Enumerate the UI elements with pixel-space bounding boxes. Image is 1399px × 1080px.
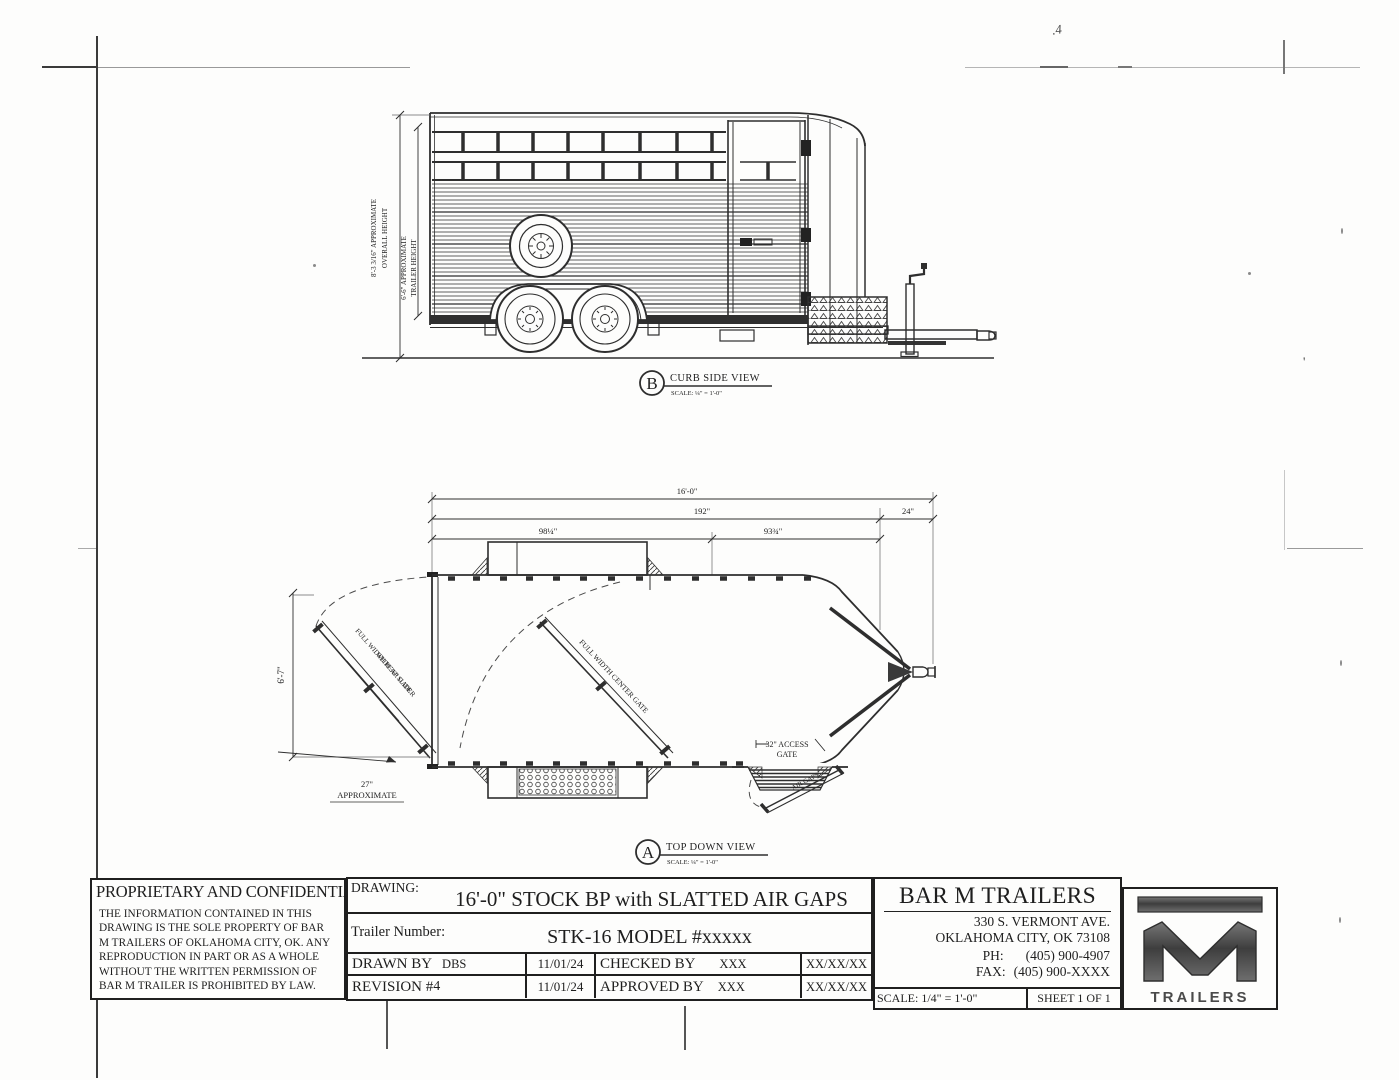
dim-front-section: 93¾" bbox=[764, 526, 782, 536]
drawn-by-value: DBS bbox=[442, 957, 466, 972]
border-top-mid bbox=[98, 67, 410, 68]
checked-date: XX/XX/XX bbox=[806, 957, 867, 972]
approved-by-label: APPROVED BY bbox=[600, 979, 704, 996]
drawing-sheet: .4 ' bbox=[0, 0, 1399, 1080]
dim-rear-section: 98¼" bbox=[539, 526, 557, 536]
side-view-fender-and-wheels bbox=[485, 284, 659, 352]
side-view-slat-rows bbox=[432, 132, 726, 180]
top-view-rear-gate: FULL WIDTH REAR GATE WITH 36" SLIDER bbox=[314, 577, 437, 758]
stray-tick-mark: ' bbox=[1303, 354, 1305, 370]
logo-bar-icon bbox=[1138, 897, 1262, 912]
top-view-body bbox=[427, 572, 904, 769]
dim-nose-length: 24" bbox=[902, 506, 914, 516]
sheet-cell: SHEET 1 OF 1 bbox=[1028, 989, 1120, 1008]
drawing-title: 16'-0" STOCK BP with SLATTED AIR GAPS bbox=[434, 887, 869, 912]
side-view-height-dimensions: 8'-3 3/16" APPROXIMATE OVERALL HEIGHT 6'… bbox=[370, 111, 430, 362]
dim-box-length: 192" bbox=[694, 506, 710, 516]
view-marker-b: B CURB SIDE VIEW SCALE: ¼" = 1'-0" bbox=[640, 371, 772, 397]
logo-m-icon bbox=[1144, 922, 1256, 981]
view-marker-b-letter: B bbox=[646, 374, 657, 393]
logo-wordmark: TRAILERS bbox=[1151, 989, 1250, 1006]
company-name-rule bbox=[884, 911, 1111, 912]
side-view-gravel-guard bbox=[808, 297, 887, 343]
proprietary-box: PROPRIETARY AND CONFIDENTIAL THE INFORMA… bbox=[90, 878, 346, 1000]
scale-sheet-row: SCALE: 1/4" = 1'-0" SHEET 1 OF 1 bbox=[875, 987, 1120, 1008]
access-gate-label-line2: GATE bbox=[777, 750, 798, 759]
revision-value: 4 bbox=[433, 979, 440, 995]
drawing-title-row: DRAWING: 16'-0" STOCK BP with SLATTED AI… bbox=[348, 879, 871, 914]
dim-rear-swing-line2: APPROXIMATE bbox=[337, 790, 397, 800]
drawn-by-row: DRAWN BY DBS 11/01/24 CHECKED BY XXX XX/… bbox=[348, 954, 871, 976]
top-view-width-dimension: 6'-7" 27" APPROXIMATE bbox=[276, 589, 430, 802]
checked-by-label: CHECKED BY bbox=[600, 956, 695, 973]
side-view-spare-tire bbox=[510, 215, 572, 277]
proprietary-title: PROPRIETARY AND CONFIDENTIAL bbox=[92, 880, 344, 902]
view-marker-a: A TOP DOWN VIEW SCALE: ¼" = 1'-0" bbox=[636, 840, 768, 866]
border-right-low bbox=[1284, 470, 1285, 550]
scan-speck bbox=[1341, 228, 1343, 234]
drawing-info-block: DRAWING: 16'-0" STOCK BP with SLATTED AI… bbox=[346, 877, 873, 1001]
trailer-number-row: Trailer Number: STK-16 MODEL #xxxxx bbox=[348, 914, 871, 954]
dim-width-label: 6'-7" bbox=[276, 666, 286, 684]
trailer-height-label-line2: TRAILER HEIGHT bbox=[410, 239, 418, 297]
top-view-title: TOP DOWN VIEW bbox=[666, 842, 756, 853]
border-top-right-dash2 bbox=[1118, 66, 1132, 68]
trailer-height-label-line1: 6'-6" APPROXIMATE bbox=[400, 236, 408, 300]
dim-rear-swing-line1: 27" bbox=[361, 779, 373, 789]
proprietary-body: THE INFORMATION CONTAINED IN THIS DRAWIN… bbox=[92, 902, 344, 994]
side-view-scale: SCALE: ¼" = 1'-0" bbox=[671, 390, 722, 397]
border-top-right bbox=[965, 67, 1360, 68]
trailer-number-label: Trailer Number: bbox=[351, 924, 445, 941]
border-top-left bbox=[42, 66, 98, 68]
revision-date: 11/01/24 bbox=[538, 979, 584, 995]
top-view-scale: SCALE: ¼" = 1'-0" bbox=[667, 859, 718, 866]
handwritten-mark: .4 bbox=[1051, 21, 1063, 38]
company-address2: OKLAHOMA CITY, OK 73108 bbox=[875, 930, 1120, 946]
top-view-access-gate: 32" ACCESS GATE AIR GAPS bbox=[732, 739, 848, 813]
trailer-number-value: STK-16 MODEL #xxxxx bbox=[468, 926, 831, 949]
sheet-text: SHEET 1 OF 1 bbox=[1037, 991, 1110, 1006]
top-view-center-gate: FULL WIDTH CENTER GATE bbox=[460, 582, 673, 758]
view-marker-a-letter: A bbox=[642, 843, 655, 862]
curb-side-view-drawing: 8'-3 3/16" APPROXIMATE OVERALL HEIGHT 6'… bbox=[360, 88, 1000, 406]
top-view-tongue bbox=[830, 608, 935, 736]
side-view-door bbox=[728, 120, 811, 315]
scale-text: SCALE: 1/4" = 1'-0" bbox=[875, 991, 977, 1006]
company-block: BAR M TRAILERS 330 S. VERMONT AVE. OKLAH… bbox=[873, 877, 1122, 1010]
rear-gate-label-line2: WITH 36" SLIDER bbox=[374, 651, 417, 699]
drawn-by-label: DRAWN BY bbox=[352, 956, 432, 973]
drawn-date: 11/01/24 bbox=[538, 956, 584, 972]
access-gate-label-line1: 32" ACCESS bbox=[765, 740, 808, 749]
fax-label: FAX: bbox=[976, 964, 1006, 980]
overall-height-label-line2: OVERALL HEIGHT bbox=[381, 207, 389, 268]
bar-m-logo: TRAILERS bbox=[1124, 889, 1276, 1008]
top-down-view-drawing: 16'-0" 192" 24" 98¼" 93¾" bbox=[270, 480, 1000, 872]
border-top-right-dash1 bbox=[1040, 66, 1068, 68]
border-left-mid-tick bbox=[78, 548, 96, 549]
phone-value: (405) 900-4907 bbox=[1026, 948, 1110, 964]
company-name: BAR M TRAILERS bbox=[875, 879, 1120, 910]
checked-by-value: XXX bbox=[719, 957, 746, 972]
phone-label: PH: bbox=[983, 948, 1004, 964]
fax-value: (405) 900-XXXX bbox=[1014, 964, 1110, 980]
company-address1: 330 S. VERMONT AVE. bbox=[875, 914, 1120, 930]
logo-box: TRAILERS bbox=[1122, 887, 1278, 1010]
approved-date: XX/XX/XX bbox=[806, 980, 867, 995]
approved-by-value: XXX bbox=[718, 980, 745, 995]
scan-speck bbox=[1340, 660, 1342, 666]
revision-row: REVISION # 4 11/01/24 APPROVED BY XXX XX… bbox=[348, 976, 871, 998]
overall-height-label-line1: 8'-3 3/16" APPROXIMATE bbox=[370, 199, 378, 277]
border-right-top bbox=[1283, 40, 1285, 74]
dim-overall-length: 16'-0" bbox=[677, 486, 698, 496]
scale-cell: SCALE: 1/4" = 1'-0" bbox=[875, 989, 1028, 1008]
revision-label: REVISION # bbox=[352, 979, 433, 996]
scan-speck bbox=[1248, 272, 1251, 275]
fold-tick-2 bbox=[684, 1006, 686, 1050]
drawing-label: DRAWING: bbox=[351, 880, 419, 896]
company-fax-line: FAX: (405) 900-XXXX bbox=[875, 964, 1120, 980]
side-view-title: CURB SIDE VIEW bbox=[670, 373, 760, 384]
center-gate-label: FULL WIDTH CENTER GATE bbox=[577, 638, 650, 716]
border-right-mid bbox=[1287, 548, 1363, 549]
fold-tick-1 bbox=[386, 1001, 388, 1049]
scan-speck bbox=[313, 264, 316, 267]
company-phone-line: PH: (405) 900-4907 bbox=[875, 948, 1120, 964]
scan-speck bbox=[1339, 917, 1341, 923]
